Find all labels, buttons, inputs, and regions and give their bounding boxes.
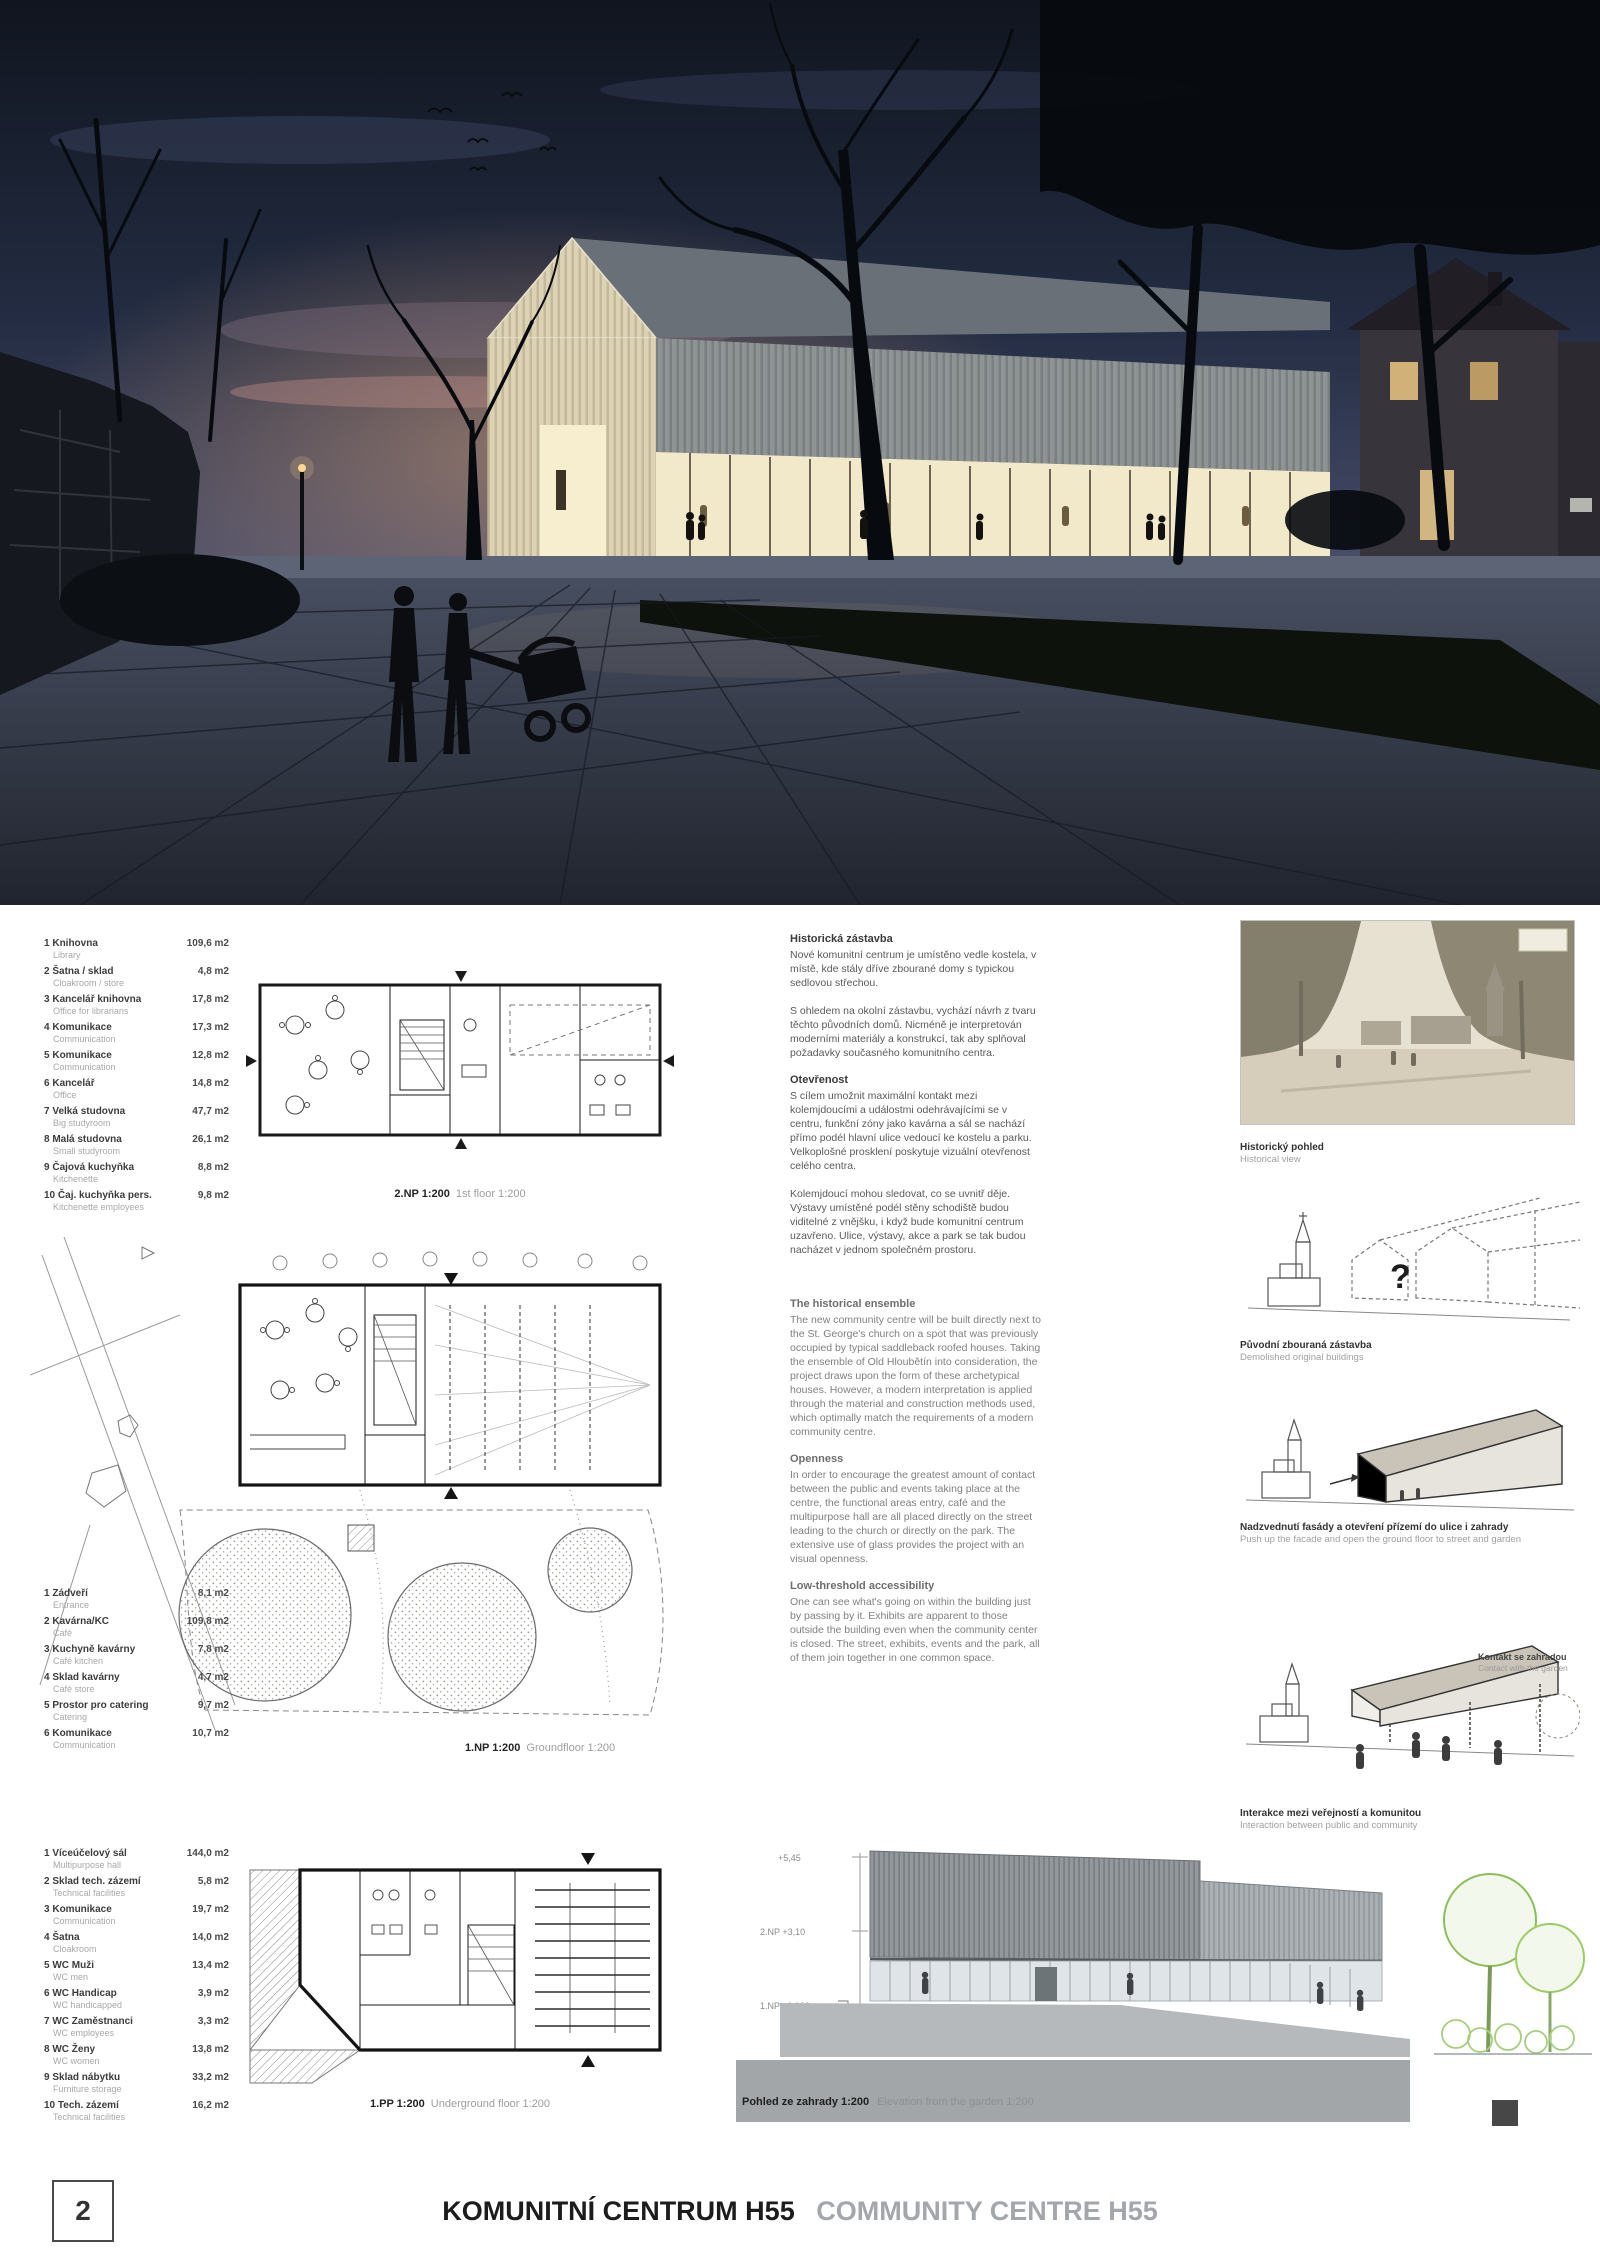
legend-row: 7 WC Zaměstnanci3,3 m2 WC employees [44, 2016, 229, 2039]
garden-trees-sketch [1428, 1862, 1598, 2077]
heading-accessibility: Low-threshold accessibility [790, 1580, 1042, 1592]
ground-floor-plan-label: 1.NP 1:200Groundfloor 1:200 [330, 1742, 750, 1754]
tree-canopy [548, 1528, 632, 1612]
paragraph: One can see what's going on within the b… [790, 1595, 1042, 1665]
diagram2-caption: Nadzvednutí fasády a otevření přízemí do… [1240, 1522, 1540, 1546]
historical-photo [1240, 920, 1575, 1125]
diagram3-caption: Interakce mezi veřejností a komunitou In… [1240, 1808, 1540, 1832]
legend-row: 6 WC Handicap3,9 m2 WC handicapped [44, 1988, 229, 2011]
diagram3-side-label: Kontakt se zahradou Contact with the gar… [1478, 1652, 1578, 1674]
project-title-czech: KOMUNITNÍ CENTRUM H55 [442, 2196, 795, 2226]
heading-otevrenost: Otevřenost [790, 1074, 1042, 1086]
project-title-english: COMMUNITY CENTRE H55 [816, 2196, 1158, 2226]
diagram1-caption: Původní zbouraná zástavba Demolished ori… [1240, 1340, 1540, 1364]
heading-openness: Openness [790, 1453, 1042, 1465]
legend-row: 3 Kuchyně kavárny7,8 m2 Café kitchen [44, 1644, 229, 1667]
legend-row: 10 Tech. zázemí16,2 m2 Technical facilit… [44, 2100, 229, 2123]
paragraph: Nové komunitní centrum je umístěno vedle… [790, 948, 1042, 990]
basement-plan [230, 1835, 690, 2085]
legend-row: 5 WC Muži13,4 m2 WC men [44, 1960, 229, 1983]
legend-row: 2 Šatna / sklad4,8 m2 Cloakroom / store [44, 966, 229, 989]
legend-row: 4 Komunikace17,3 m2 Communication [44, 1022, 229, 1045]
text-czech: Historická zástavba Nové komunitní centr… [790, 933, 1042, 1271]
level-label-top: +5,45 [778, 1853, 801, 1863]
legend-row: 2 Sklad tech. zázemí5,8 m2 Technical fac… [44, 1876, 229, 1899]
diagram-demolished-buildings: ? [1240, 1180, 1580, 1330]
diagram-push-up-facade [1240, 1392, 1580, 1517]
first-floor-plan [240, 965, 680, 1170]
legend-row: 1 Víceúčelový sál144,0 m2 Multipurpose h… [44, 1848, 229, 1871]
legend-row: 8 WC Ženy13,8 m2 WC women [44, 2044, 229, 2067]
paragraph: The new community centre will be built d… [790, 1313, 1042, 1439]
historical-photo-caption: Historický pohled Historical view [1240, 1142, 1540, 1166]
paragraph: S ohledem na okolní zástavbu, vychází ná… [790, 1004, 1042, 1060]
paragraph: Kolemjdoucí mohou sledovat, co se uvnitř… [790, 1187, 1042, 1257]
legend-row: 6 Komunikace10,7 m2 Communication [44, 1728, 229, 1751]
legend-row: 6 Kancelář14,8 m2 Office [44, 1078, 229, 1101]
legend-basement: 1 Víceúčelový sál144,0 m2 Multipurpose h… [44, 1848, 229, 2128]
legend-row: 5 Prostor pro catering9,7 m2 Catering [44, 1700, 229, 1723]
legend-row: 9 Sklad nábytku33,2 m2 Furniture storage [44, 2072, 229, 2095]
elevation-label: Pohled ze zahrady 1:200Elevation from th… [742, 2096, 1034, 2108]
question-mark: ? [1390, 1258, 1411, 1296]
basement-plan-label: 1.PP 1:200Underground floor 1:200 [240, 2098, 680, 2110]
garden-elevation: +5,45 2.NP +3,10 1.NP ±0,000 [720, 1835, 1420, 2135]
legend-row: 5 Komunikace12,8 m2 Communication [44, 1050, 229, 1073]
level-label-mid: 2.NP +3,10 [760, 1927, 805, 1937]
heading-historical-ensemble: The historical ensemble [790, 1298, 1042, 1310]
competition-board: 1 Knihovna109,6 m2 Library 2 Šatna / skl… [0, 0, 1600, 2262]
tree-canopy [388, 1563, 536, 1711]
text-english: The historical ensemble The new communit… [790, 1298, 1042, 1679]
legend-row: 4 Sklad kavárny4,7 m2 Café store [44, 1672, 229, 1695]
first-floor-plan-label: 2.NP 1:2001st floor 1:200 [240, 1188, 680, 1200]
board-corner-mark [1492, 2100, 1518, 2126]
legend-first-floor: 1 Knihovna109,6 m2 Library 2 Šatna / skl… [44, 938, 229, 1218]
project-title: KOMUNITNÍ CENTRUM H55 COMMUNITY CENTRE H… [0, 2196, 1600, 2227]
legend-row: 3 Komunikace19,7 m2 Communication [44, 1904, 229, 1927]
diagram-public-interaction [1240, 1598, 1580, 1798]
heading-historicka-zastavba: Historická zástavba [790, 933, 1042, 945]
hero-rendering [0, 0, 1600, 905]
legend-row: 2 Kavárna/KC109,8 m2 Café [44, 1616, 229, 1639]
legend-row: 10 Čaj. kuchyňka pers.9,8 m2 Kitchenette… [44, 1190, 229, 1213]
legend-row: 1 Knihovna109,6 m2 Library [44, 938, 229, 961]
legend-row: 3 Kancelář knihovna17,8 m2 Office for li… [44, 994, 229, 1017]
legend-row: 4 Šatna14,0 m2 Cloakroom [44, 1932, 229, 1955]
legend-row: 9 Čajová kuchyňka8,8 m2 Kitchenette [44, 1162, 229, 1185]
legend-row: 7 Velká studovna47,7 m2 Big studyroom [44, 1106, 229, 1129]
paragraph: S cílem umožnit maximální kontakt mezi k… [790, 1089, 1042, 1173]
legend-row: 8 Malá studovna26,1 m2 Small studyroom [44, 1134, 229, 1157]
glowing-doorway [540, 425, 606, 568]
paragraph: In order to encourage the greatest amoun… [790, 1468, 1042, 1566]
legend-row: 1 Zádveří8,1 m2 Entrance [44, 1588, 229, 1611]
caption-band [736, 2060, 1410, 2122]
legend-ground-floor: 1 Zádveří8,1 m2 Entrance 2 Kavárna/KC109… [44, 1588, 229, 1756]
